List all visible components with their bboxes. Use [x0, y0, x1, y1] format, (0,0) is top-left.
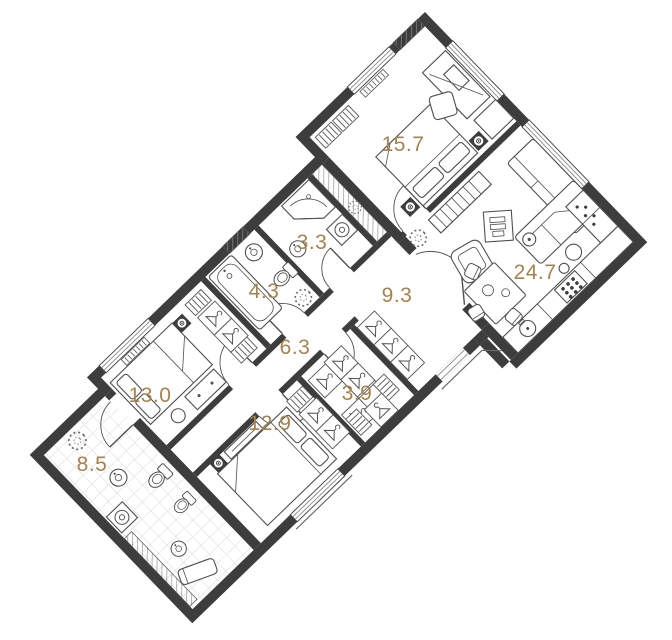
- room-area-label: 3.3: [297, 231, 328, 254]
- entry-door-opening: [431, 330, 501, 399]
- room-area-label: 15.7: [382, 133, 425, 156]
- room-area-label: 13.0: [129, 384, 172, 407]
- coffee-table: [483, 210, 513, 242]
- room-area-label: 3.9: [342, 382, 373, 405]
- room-area-label: 8.5: [77, 453, 108, 476]
- room-area-label: 24.7: [514, 261, 557, 284]
- floor-plan-svg: 15.7 24.7 3.3 4.3 9.3 6.3 3.9 13.0 12.9 …: [0, 0, 672, 640]
- room-area-label: 6.3: [280, 336, 311, 359]
- pouf: [168, 406, 188, 426]
- room-area-label: 4.3: [249, 280, 280, 303]
- room-13-0-furniture: [104, 285, 261, 441]
- floor-plan-screenshot: 15.7 24.7 3.3 4.3 9.3 6.3 3.9 13.0 12.9 …: [0, 0, 672, 640]
- side-table: [562, 241, 585, 264]
- rotated-plan-group: [0, 12, 647, 640]
- room-12-9-furniture: [208, 378, 356, 525]
- room-area-label: 9.3: [382, 284, 413, 307]
- room-area-label: 12.9: [249, 412, 292, 435]
- outer-walls: [0, 12, 647, 640]
- sink-icon: [242, 240, 266, 264]
